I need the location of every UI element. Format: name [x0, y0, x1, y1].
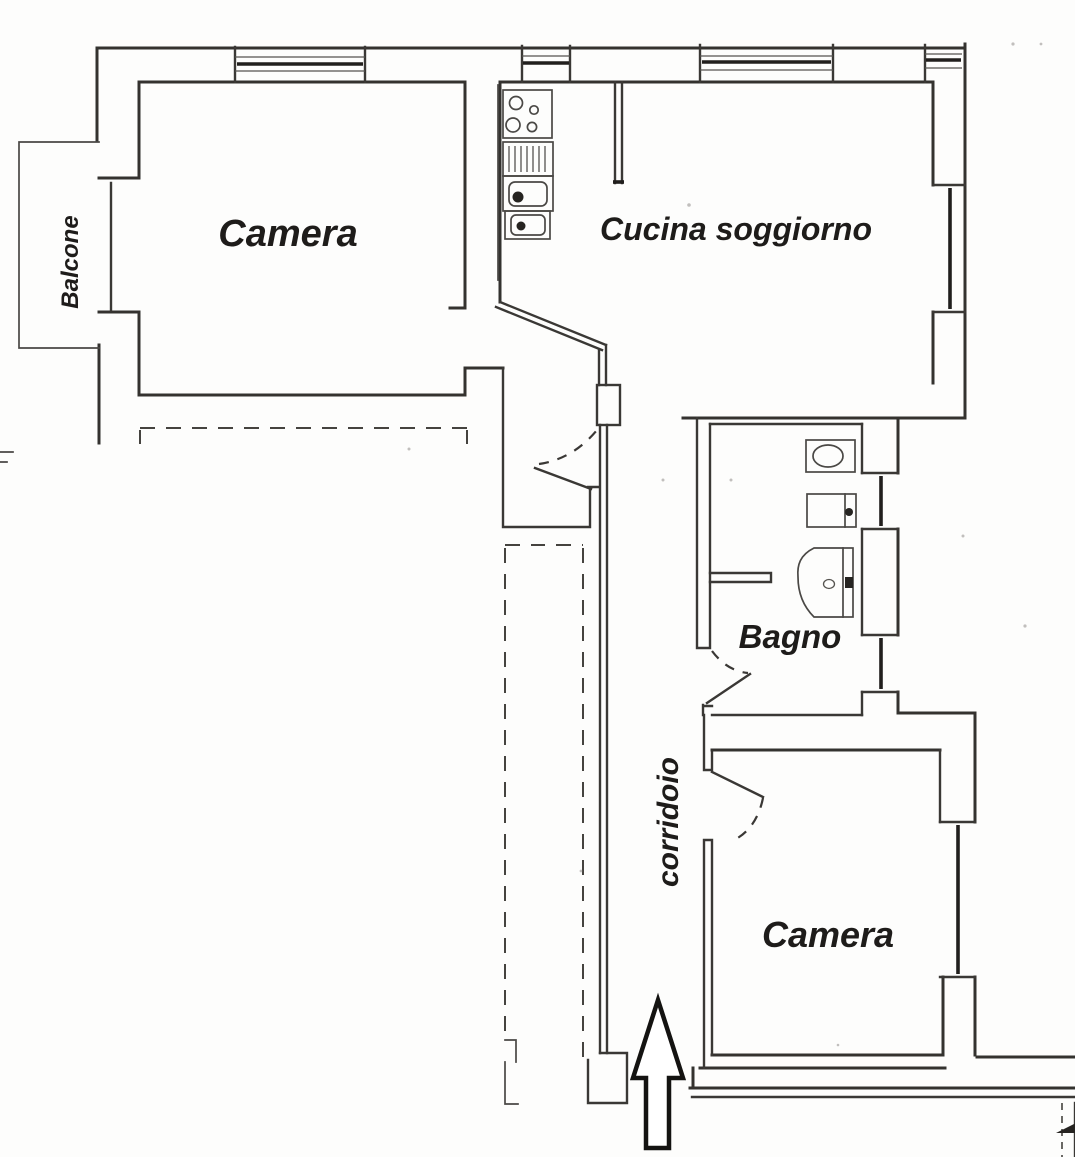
doors: [535, 430, 763, 839]
room-label-cucina-soggiorno: Cucina soggiorno: [600, 211, 872, 247]
toilet-icon: [798, 548, 853, 617]
bagno-partition: [710, 573, 771, 582]
kitchen-fixtures: [498, 85, 553, 280]
room-label-balcone: Balcone: [57, 215, 84, 308]
entry-door-leaf: [535, 468, 591, 489]
outer-walls: [0, 44, 1075, 1097]
section-mark: [1056, 1103, 1075, 1157]
floor-plan-svg: Camera Cucina soggiorno Bagno Camera cor…: [0, 0, 1075, 1157]
room-label-corridoio: corridoio: [652, 757, 685, 887]
dashed-boundaries: [140, 428, 583, 1104]
top-wall-windows: [235, 45, 962, 82]
vestibule-walls: [496, 302, 620, 527]
kitchen-partition: [613, 82, 624, 183]
bathroom-fixtures: [798, 440, 856, 617]
camera-2-door-arc: [736, 798, 763, 839]
corridor-walls: [588, 418, 712, 1103]
floor-plan-page: Camera Cucina soggiorno Bagno Camera cor…: [0, 0, 1075, 1157]
bagno-door-leaf: [707, 674, 750, 703]
door-pier: [597, 385, 620, 425]
camera-2-door-leaf: [712, 772, 763, 797]
entrance-arrow-icon: [633, 1000, 683, 1148]
bagno-walls: [710, 424, 898, 715]
room-label-camera-2: Camera: [762, 914, 894, 955]
cucina-right-window: [933, 82, 965, 383]
entry-door-arc: [539, 430, 597, 464]
room-label-bagno: Bagno: [739, 618, 842, 655]
room-label-camera-1: Camera: [218, 213, 357, 255]
